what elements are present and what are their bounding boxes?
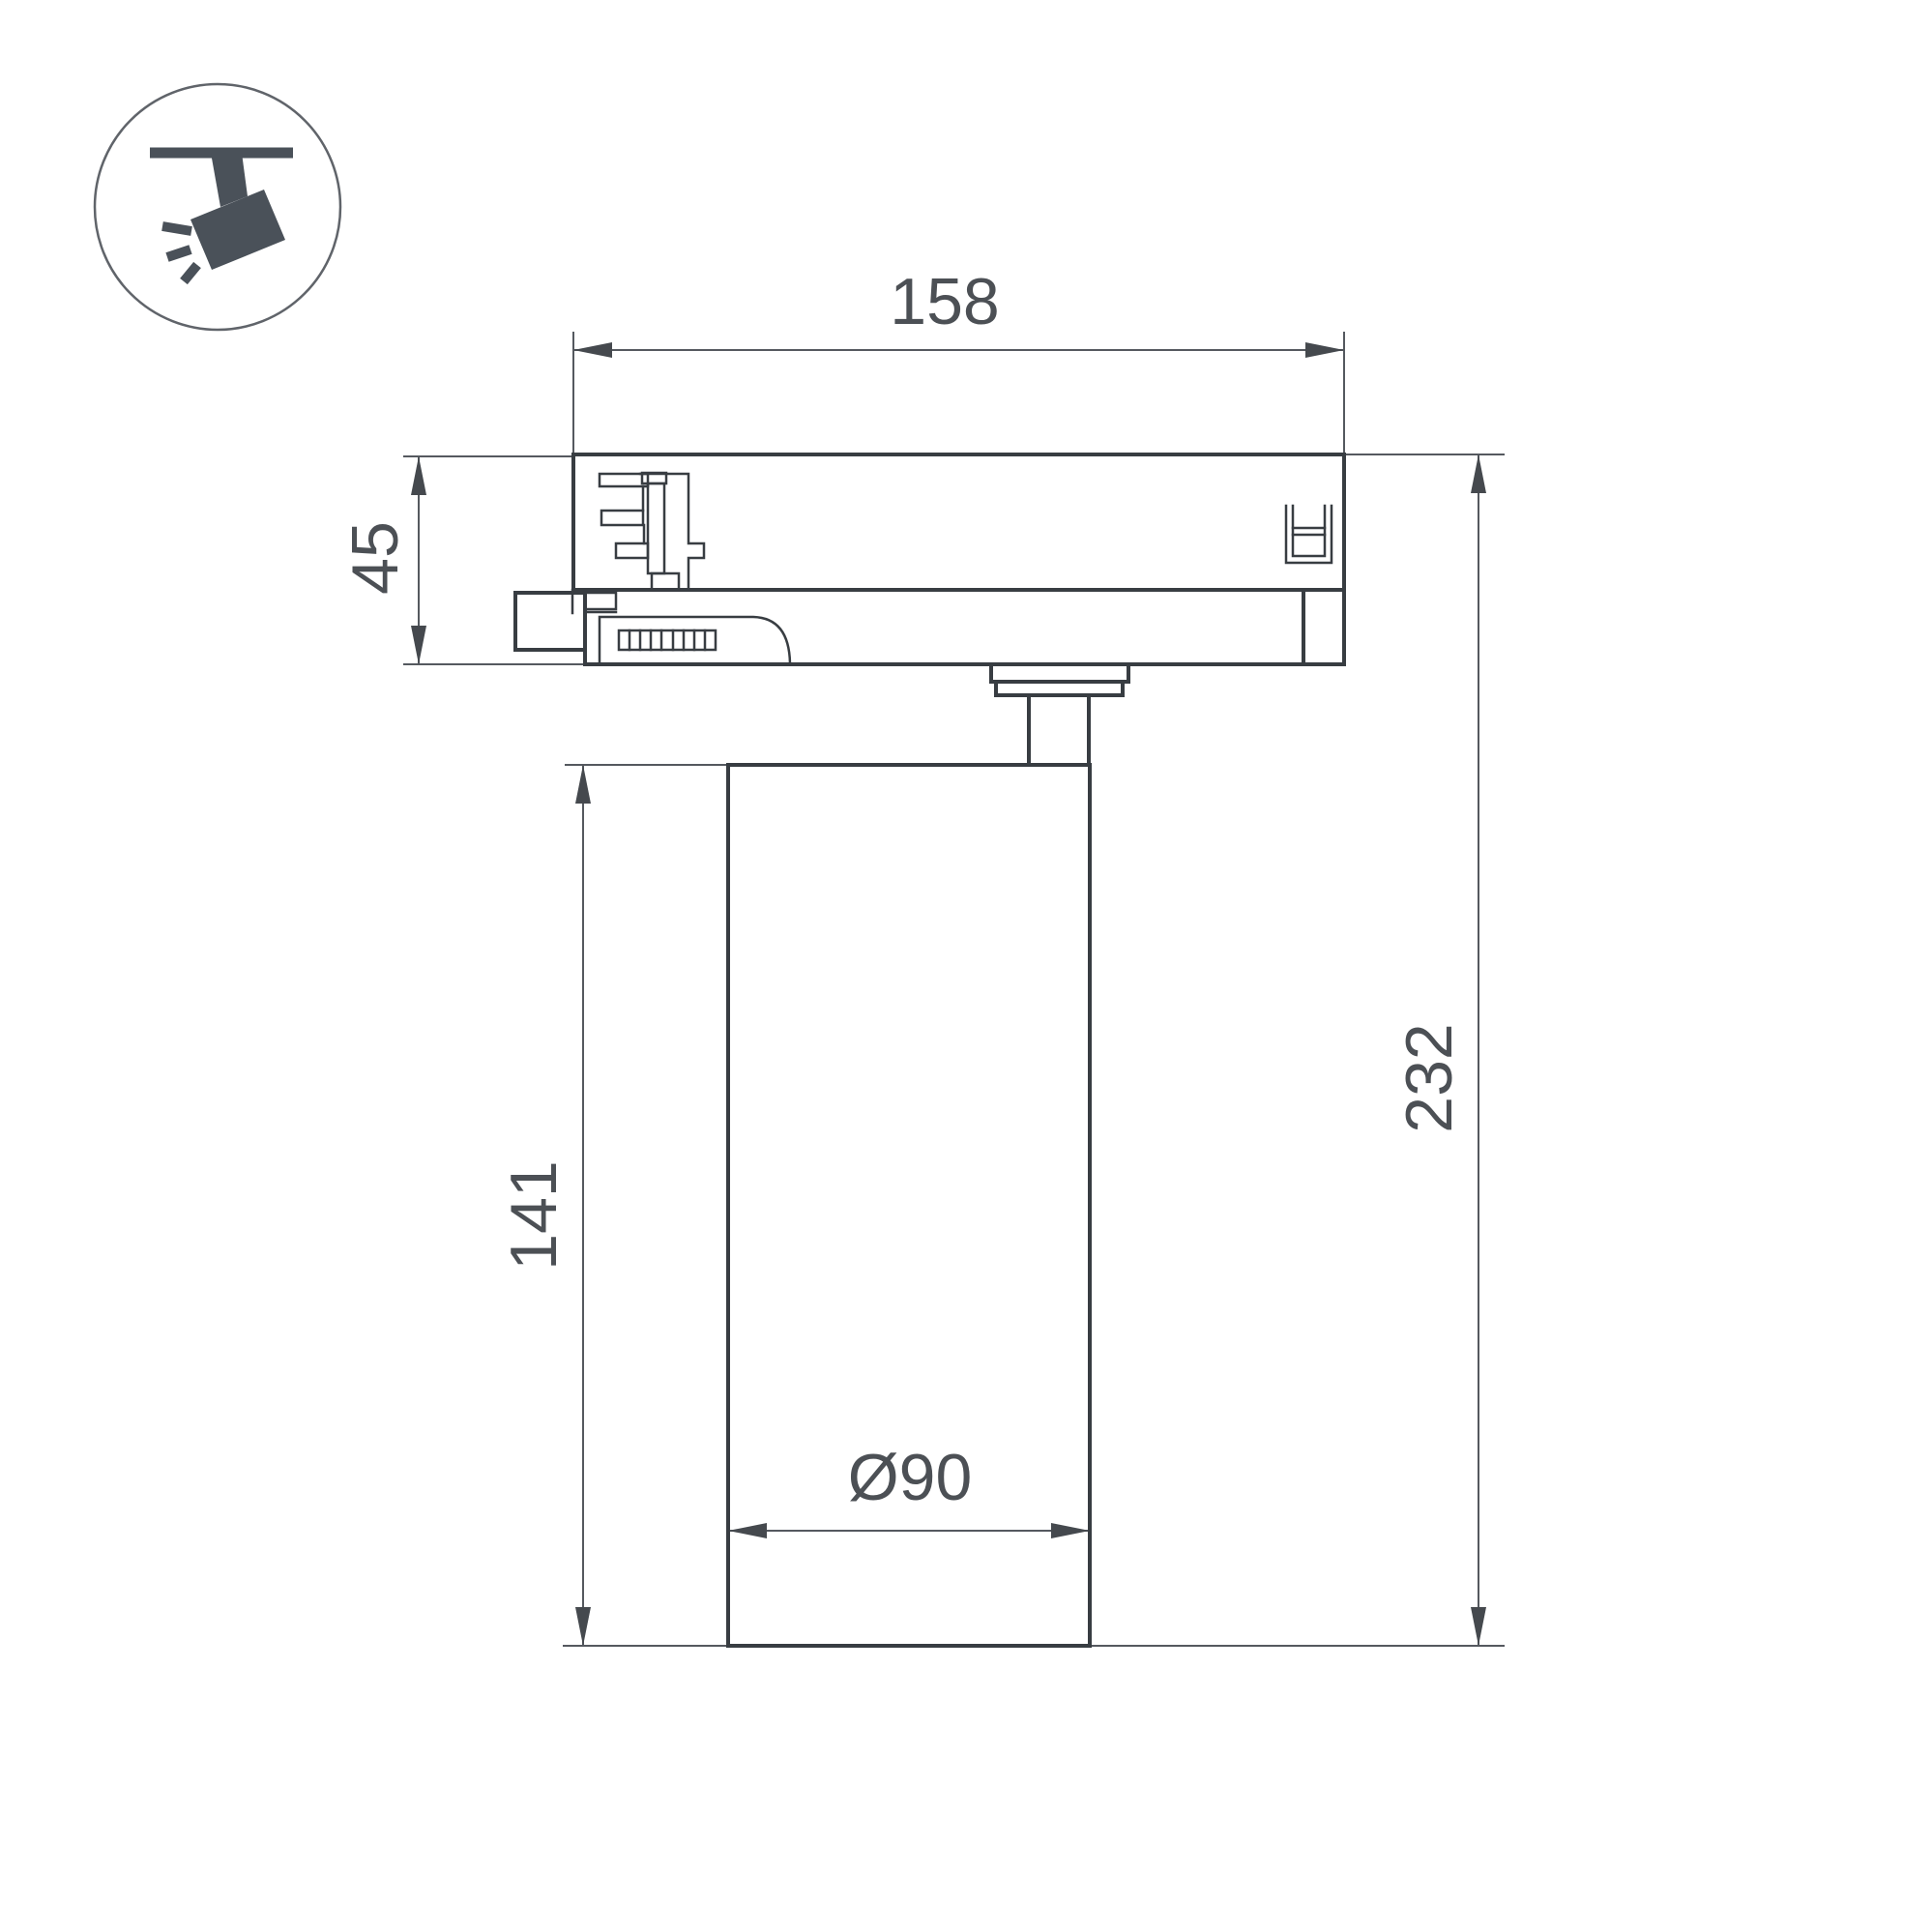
arrowhead-top [411,456,426,495]
locking-lever-block [515,593,585,650]
dimension-label-45: 45 [338,521,412,595]
icon-circle-border [95,84,340,330]
dimension-adapter-width: 158 [573,265,1344,454]
mounting-type-icon [95,84,340,330]
arrowhead-left [573,342,612,358]
contact-prong [601,511,643,525]
arrowhead-bottom [411,626,426,664]
adapter-lower-housing [515,590,1344,664]
arrowhead-bottom [575,1607,591,1646]
contact-prong [600,474,648,486]
dimension-label-232: 232 [1392,1023,1466,1132]
dimension-body-diameter: Ø90 [728,1441,1090,1538]
dimension-drawing: 158 45 141 232 Ø90 [0,0,1932,1932]
arrowhead-top [1471,454,1486,493]
technical-drawing-canvas: 158 45 141 232 Ø90 [0,0,1932,1932]
dimension-label-diameter: Ø90 [848,1441,973,1514]
arrowhead-left [728,1523,767,1538]
arrowhead-right [1051,1523,1090,1538]
housing-louver-grille [619,630,716,650]
adapter-ground-clip [1286,506,1332,563]
grille-frame [619,630,716,650]
contact-prong [616,543,648,558]
dimension-total-height: 232 [1344,454,1505,1646]
joint-flange-lower [996,682,1123,695]
light-ray [162,226,191,231]
adapter-contact-assembly [600,473,704,590]
arrowhead-bottom [1471,1607,1486,1646]
dimension-label-141: 141 [497,1160,571,1270]
dimension-body-height: 141 [497,765,728,1646]
joint-flange-upper [991,664,1128,682]
dimension-adapter-height: 45 [338,456,585,664]
clip-inner-wall [1293,506,1325,556]
dimension-label-158: 158 [890,265,999,338]
lever-clip [585,593,616,609]
contact-rod-foot [652,573,679,590]
contact-body-outline [640,474,704,589]
contact-rod [648,483,664,573]
arrowhead-right [1305,342,1344,358]
swivel-joint [991,664,1128,765]
track-adapter [515,454,1344,664]
arrowhead-top [575,765,591,804]
